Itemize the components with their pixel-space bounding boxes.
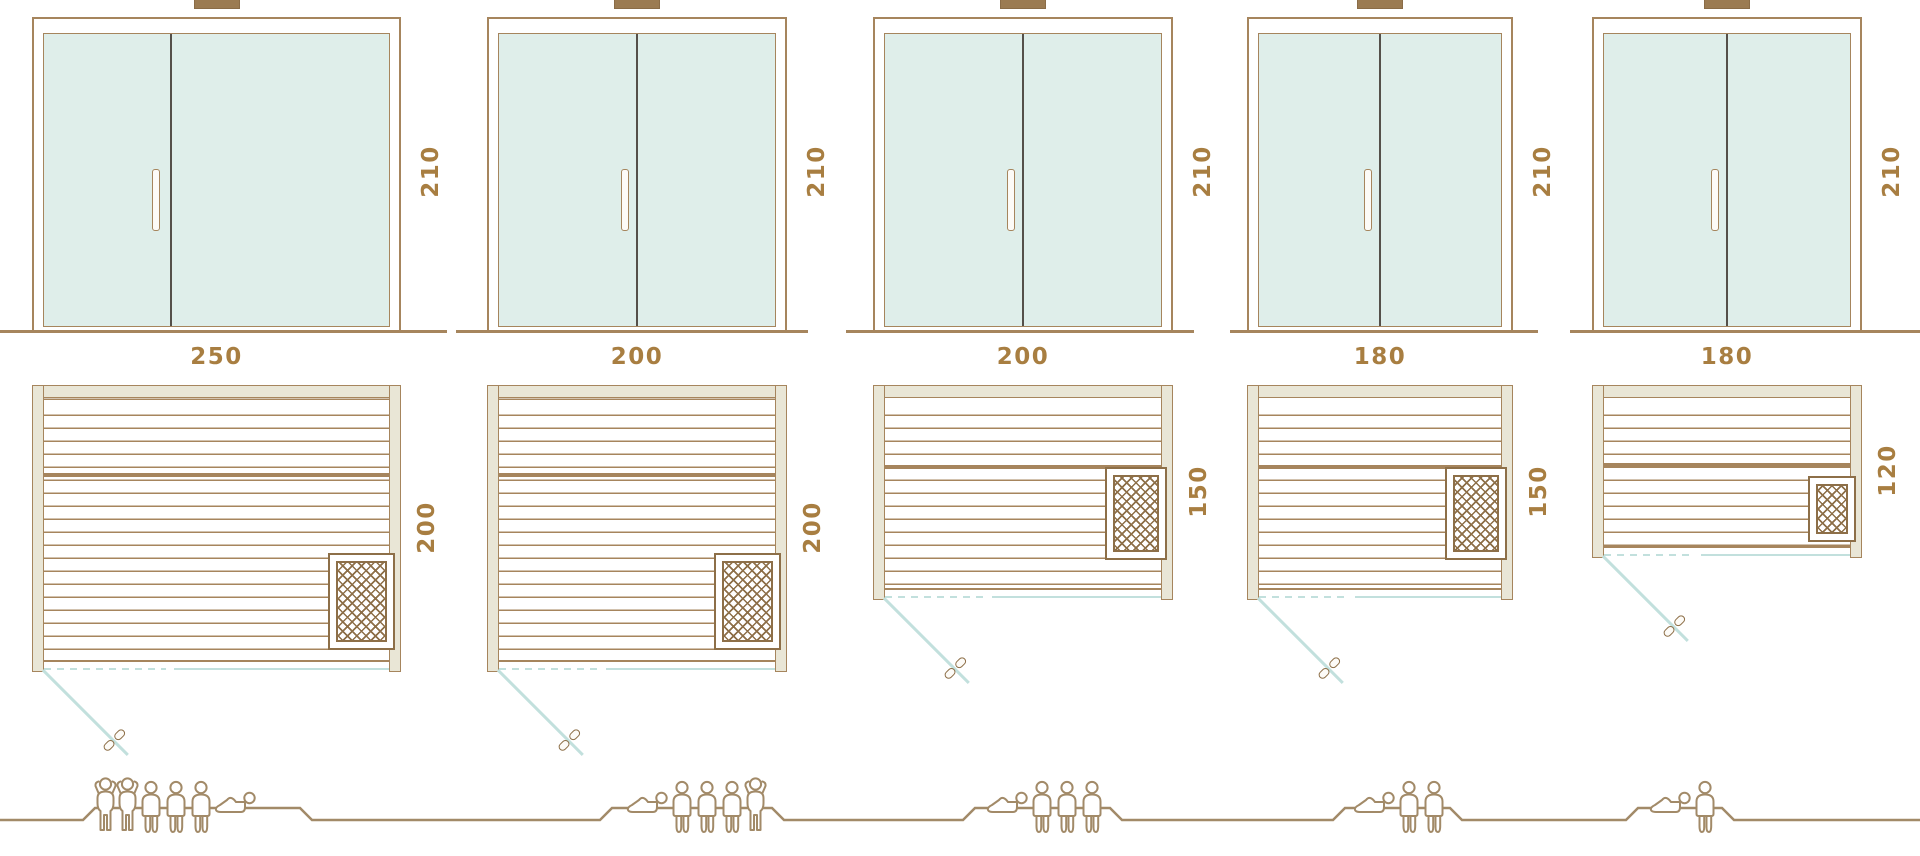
heater-crosshatch [1816, 484, 1848, 534]
roof-vent-icon [1357, 0, 1403, 9]
wall-left [873, 385, 885, 600]
person-standing-icon [742, 776, 769, 832]
person-sitting-icon [1077, 780, 1107, 834]
plan-door-handle-icon [113, 728, 127, 742]
plan-depth-label: 200 [416, 501, 439, 554]
person-sitting-icon [1419, 780, 1449, 834]
plan-depth-label: 120 [1877, 444, 1900, 497]
capacity-figures [92, 772, 255, 832]
bench-edge-line [1603, 463, 1851, 467]
plan-view [1247, 385, 1513, 600]
door-swing-line [497, 669, 584, 756]
capacity-figures [1646, 772, 1715, 832]
capacity-figures [1350, 772, 1444, 832]
door-handle [152, 169, 160, 231]
plan-door-handle-icon [1662, 624, 1676, 638]
wall-left [487, 385, 499, 672]
roof-vent-icon [1000, 0, 1046, 9]
plan-door-handle-icon [943, 666, 957, 680]
plan-door-handle-icon [1328, 656, 1342, 670]
heater-icon [328, 553, 395, 650]
bench-edge-line [498, 473, 776, 477]
plan-door-handle-icon [1317, 666, 1331, 680]
plan-depth-label: 150 [1188, 465, 1211, 518]
person-lying-icon [211, 790, 257, 814]
bench-edge-line [43, 473, 390, 477]
person-sitting-icon [1690, 780, 1720, 834]
door-handle [621, 169, 629, 231]
sauna-model-250x200: 210 250 200 [32, 0, 401, 856]
capacity-figures [623, 772, 764, 832]
plan-depth-label: 150 [1528, 465, 1551, 518]
door-handle [1711, 169, 1719, 231]
door-handle [1007, 169, 1015, 231]
wall-top [873, 385, 1173, 398]
roof-vent-icon [194, 0, 240, 9]
glass-front-line [174, 668, 389, 671]
door-opening-dashed-line [1604, 554, 1693, 557]
door-swing-line [42, 669, 129, 756]
wall-left [32, 385, 44, 672]
person-lying-icon [1350, 790, 1396, 814]
plan-width-label: 180 [1247, 346, 1513, 369]
door-height-label: 210 [420, 145, 443, 198]
glass-front-line [1355, 596, 1501, 599]
heater-crosshatch [722, 561, 773, 642]
plan-depth-label: 200 [802, 501, 825, 554]
door-swing-line [1602, 555, 1689, 642]
heater-icon [1445, 467, 1507, 560]
wall-top [1592, 385, 1862, 398]
sauna-model-180x120: 210 180 120 [1592, 0, 1862, 856]
door-opening-dashed-line [885, 596, 984, 599]
sauna-model-200x200: 210 200 200 [487, 0, 787, 856]
door-height-label: 210 [806, 145, 829, 198]
plan-door-handle-icon [954, 656, 968, 670]
heater-icon [714, 553, 781, 650]
wall-left [1592, 385, 1604, 558]
plan-width-label: 200 [873, 346, 1173, 369]
plan-door-handle-icon [1673, 614, 1687, 628]
door-opening-dashed-line [499, 668, 598, 671]
heater-crosshatch [336, 561, 387, 642]
plan-door-handle-icon [102, 738, 116, 752]
heater-icon [1105, 467, 1167, 560]
glass-door-panels [884, 33, 1162, 327]
plan-door-handle-icon [568, 728, 582, 742]
door-divider-line [636, 34, 638, 326]
person-lying-icon [623, 790, 669, 814]
capacity-figures [983, 772, 1102, 832]
glass-front-line [992, 596, 1161, 599]
door-divider-line [1379, 34, 1381, 326]
wall-left [1247, 385, 1259, 600]
door-divider-line [1726, 34, 1728, 326]
sauna-model-180x150: 210 180 150 [1247, 0, 1513, 856]
heater-crosshatch [1113, 475, 1159, 552]
heater-crosshatch [1453, 475, 1499, 552]
door-height-label: 210 [1532, 145, 1555, 198]
glass-door-panels [498, 33, 776, 327]
glass-front-line [606, 668, 775, 671]
sauna-size-diagram: 210 250 200 210 200 [0, 0, 1920, 856]
plan-width-label: 180 [1592, 346, 1862, 369]
door-elevation [873, 17, 1173, 332]
glass-front-line [1701, 554, 1850, 557]
plan-width-label: 200 [487, 346, 787, 369]
wall-top [487, 385, 787, 398]
roof-vent-icon [614, 0, 660, 9]
person-lying-icon [1646, 790, 1692, 814]
wall-top [1247, 385, 1513, 398]
door-opening-dashed-line [1259, 596, 1347, 599]
door-swing-line [883, 597, 970, 684]
door-opening-dashed-line [44, 668, 166, 671]
plan-view [1592, 385, 1862, 558]
plan-width-label: 250 [32, 346, 401, 369]
glass-door-panels [1258, 33, 1502, 327]
door-divider-line [1022, 34, 1024, 326]
heater-icon [1808, 476, 1856, 542]
glass-door-panels [43, 33, 390, 327]
door-swing-line [1257, 597, 1344, 684]
door-elevation [1592, 17, 1862, 332]
plan-view [873, 385, 1173, 600]
door-elevation [487, 17, 787, 332]
door-elevation [1247, 17, 1513, 332]
door-handle [1364, 169, 1372, 231]
person-lying-icon [983, 790, 1029, 814]
door-height-label: 210 [1881, 145, 1904, 198]
plan-view [32, 385, 401, 672]
glass-door-panels [1603, 33, 1851, 327]
wall-top [32, 385, 401, 398]
door-elevation [32, 17, 401, 332]
door-divider-line [170, 34, 172, 326]
door-height-label: 210 [1192, 145, 1215, 198]
plan-door-handle-icon [557, 738, 571, 752]
sauna-model-200x150: 210 200 150 [873, 0, 1173, 856]
roof-vent-icon [1704, 0, 1750, 9]
plan-view [487, 385, 787, 672]
